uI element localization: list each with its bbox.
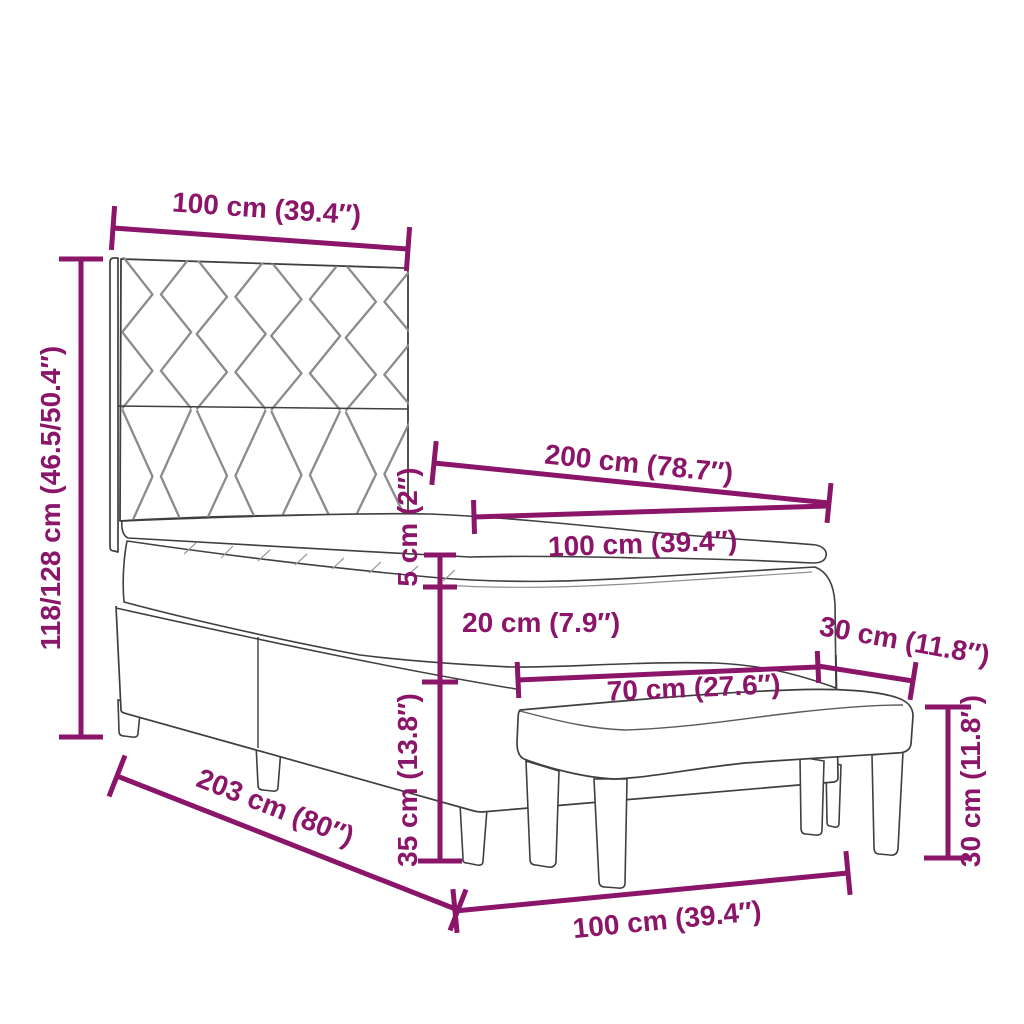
svg-text:118/128 cm (46.5/50.4″): 118/128 cm (46.5/50.4″): [35, 346, 66, 651]
svg-text:100 cm (39.4″): 100 cm (39.4″): [548, 525, 738, 563]
svg-text:20 cm (7.9″): 20 cm (7.9″): [462, 607, 620, 638]
svg-text:35 cm (13.8″): 35 cm (13.8″): [392, 693, 423, 867]
svg-text:30 cm (11.8″): 30 cm (11.8″): [955, 695, 986, 867]
svg-text:5 cm (2″): 5 cm (2″): [392, 467, 423, 586]
